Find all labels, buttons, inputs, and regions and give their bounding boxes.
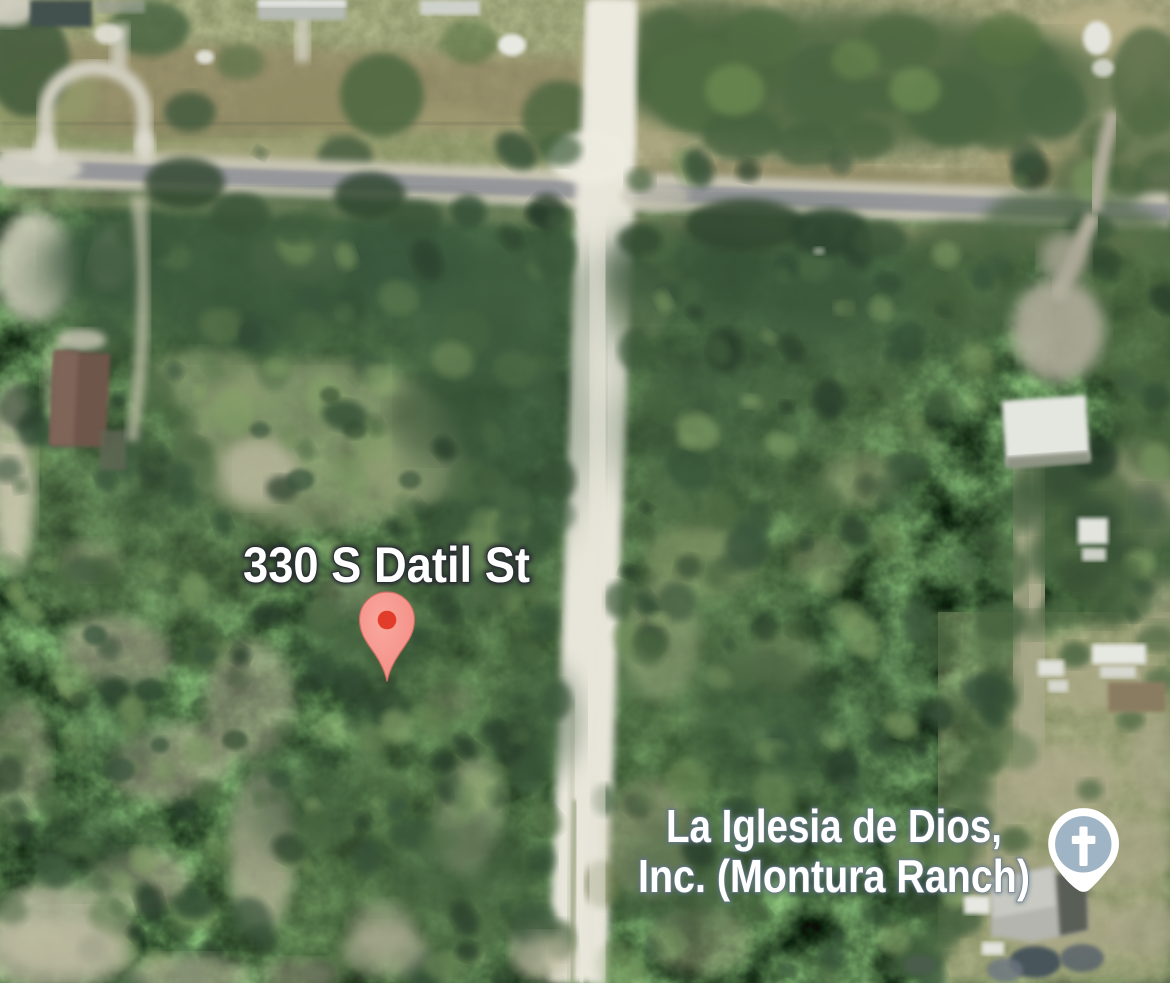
svg-text:Inc. (Montura Ranch): Inc. (Montura Ranch) xyxy=(638,850,1030,902)
svg-text:330 S Datil St: 330 S Datil St xyxy=(243,537,530,593)
svg-text:La Iglesia de Dios,: La Iglesia de Dios, xyxy=(666,800,1002,852)
